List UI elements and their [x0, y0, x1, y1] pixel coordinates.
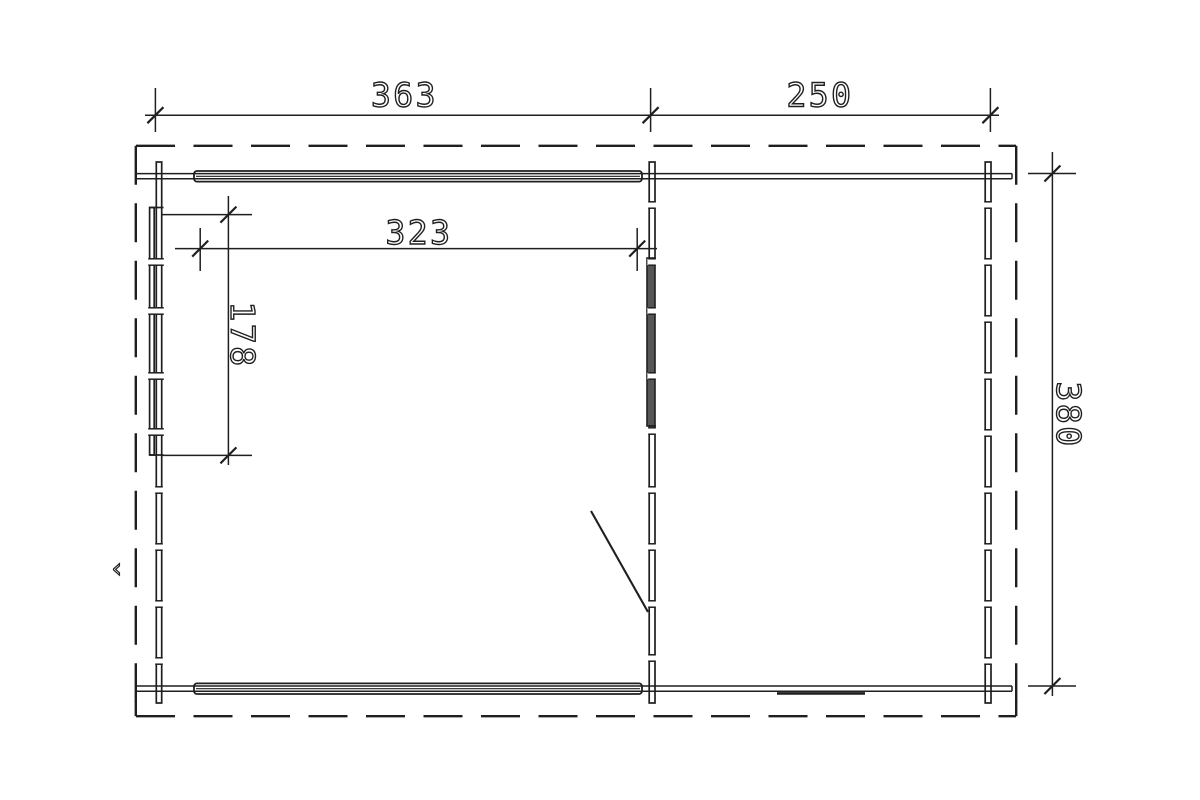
wall-joint — [148, 429, 165, 435]
dimension-label-323: 323 — [385, 213, 452, 252]
walls — [150, 162, 991, 703]
dimension-depth: 380 — [1028, 152, 1088, 696]
wall-joint — [983, 601, 992, 607]
wall-joint — [647, 601, 656, 607]
middle-wall-window-band — [647, 258, 655, 426]
wall-joint — [983, 373, 992, 379]
left-wall-door-panel — [150, 208, 155, 456]
wall-joint — [647, 373, 656, 379]
roof-overhang-outline — [136, 146, 1016, 716]
wall-joint — [983, 658, 992, 664]
wall-joint — [148, 259, 165, 265]
floor-plan-canvas: 363 250 323 178 380 — [0, 0, 1200, 800]
dimension-top: 363 250 — [145, 76, 999, 133]
door-swing-line — [591, 511, 648, 612]
wall-joint — [983, 316, 992, 322]
left-margin-stray-mark: ‹ — [109, 554, 125, 584]
dimension-label-380: 380 — [1049, 381, 1088, 448]
wall-joint — [154, 544, 163, 550]
wall-joint — [647, 308, 656, 314]
wall-joint — [983, 544, 992, 550]
wall-joint — [983, 259, 992, 265]
wall-joint — [647, 202, 656, 208]
dimension-left-opening: 178 — [162, 196, 262, 465]
wall-joint — [647, 487, 656, 493]
dimension-label-363: 363 — [371, 76, 438, 115]
dimension-interior-width: 323 — [175, 213, 657, 271]
floor-plan-svg: 363 250 323 178 380 — [0, 0, 1200, 800]
wall-joint — [154, 658, 163, 664]
wall-joint — [647, 655, 656, 661]
wall-joint — [983, 202, 992, 208]
wall-joint — [647, 544, 656, 550]
wall-joint — [647, 428, 656, 434]
wall-joint — [983, 487, 992, 493]
wall-joint — [983, 430, 992, 436]
wall-joint-marks — [148, 202, 993, 664]
dimension-label-250: 250 — [786, 76, 853, 115]
wall-rails — [135, 174, 1012, 694]
dimension-label-178: 178 — [223, 301, 262, 368]
wall-joint — [647, 259, 656, 265]
wall-joint — [154, 601, 163, 607]
wall-joint — [148, 308, 165, 314]
wall-joint — [148, 373, 165, 379]
wall-joint — [154, 487, 163, 493]
